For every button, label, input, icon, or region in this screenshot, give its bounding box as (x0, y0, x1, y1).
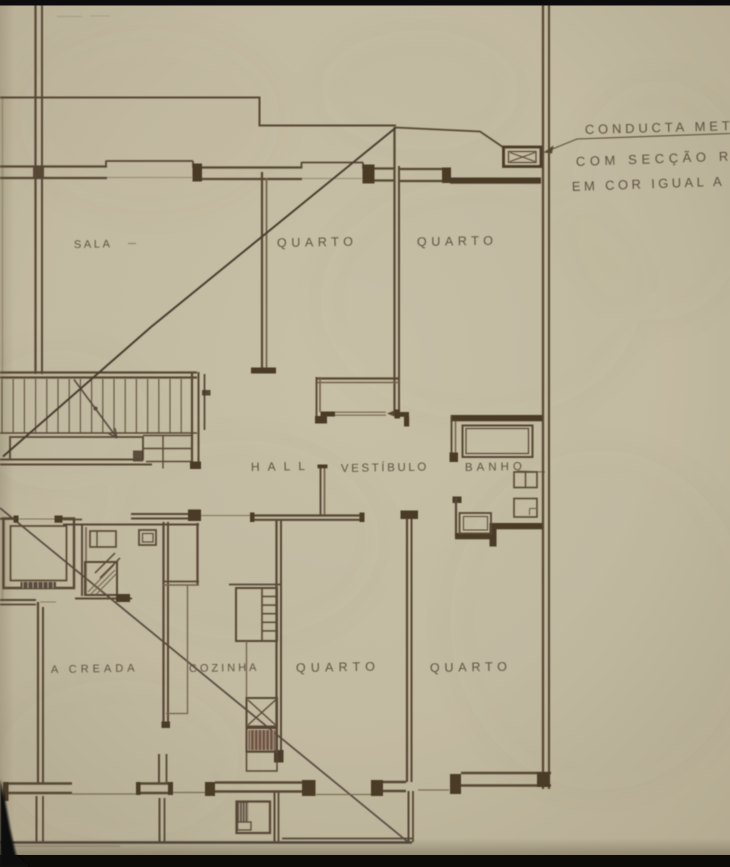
svg-text:QUARTO: QUARTO (417, 234, 498, 249)
svg-text:QUARTO: QUARTO (296, 660, 380, 675)
svg-text:HALL: HALL (251, 459, 313, 474)
svg-text:QUARTO: QUARTO (430, 660, 512, 675)
svg-text:COZINHA: COZINHA (189, 662, 260, 675)
svg-text:QUARTO: QUARTO (277, 235, 358, 250)
svg-text:BANHO: BANHO (465, 461, 526, 474)
svg-text:A CREADA: A CREADA (51, 662, 139, 676)
svg-text:SALA: SALA (74, 238, 113, 251)
svg-text:VESTÍBULO: VESTÍBULO (341, 460, 429, 475)
